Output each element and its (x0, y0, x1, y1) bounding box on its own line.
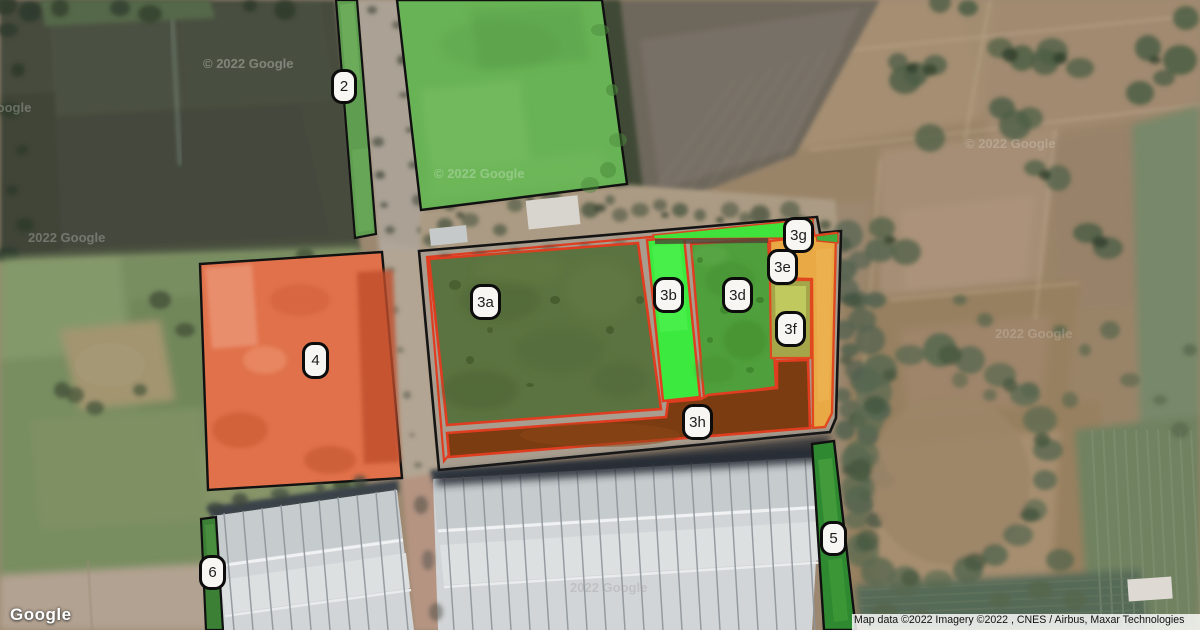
svg-text:© 2022 Google: © 2022 Google (965, 136, 1056, 151)
svg-text:© 2022 Google: © 2022 Google (434, 166, 525, 181)
svg-text:2022 Google: 2022 Google (995, 326, 1072, 341)
svg-text:© 2022 Google: © 2022 Google (203, 56, 294, 71)
svg-text:2022 Google: 2022 Google (0, 100, 31, 115)
svg-text:2022 Google: 2022 Google (570, 580, 647, 595)
svg-text:2022 Google: 2022 Google (28, 230, 105, 245)
